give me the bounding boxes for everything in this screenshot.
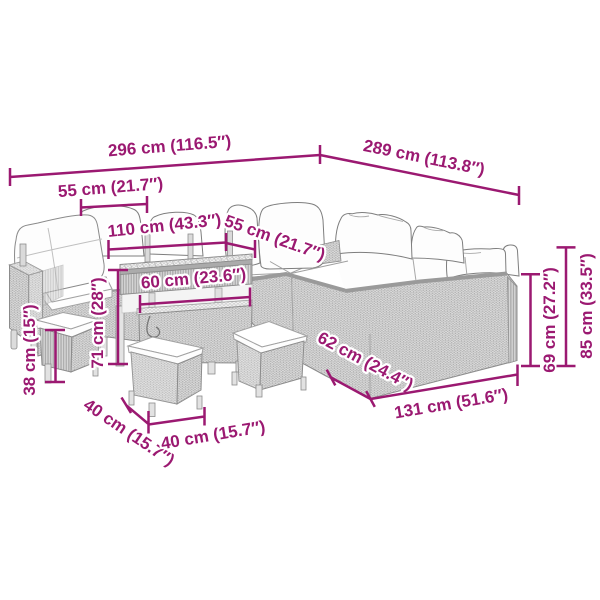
svg-text:85 cm (33.5″): 85 cm (33.5″) bbox=[577, 253, 596, 358]
svg-text:38 cm (15″): 38 cm (15″) bbox=[20, 304, 39, 395]
svg-text:71 cm (28″): 71 cm (28″) bbox=[88, 277, 107, 368]
svg-text:69 cm (27.2″): 69 cm (27.2″) bbox=[540, 267, 559, 372]
